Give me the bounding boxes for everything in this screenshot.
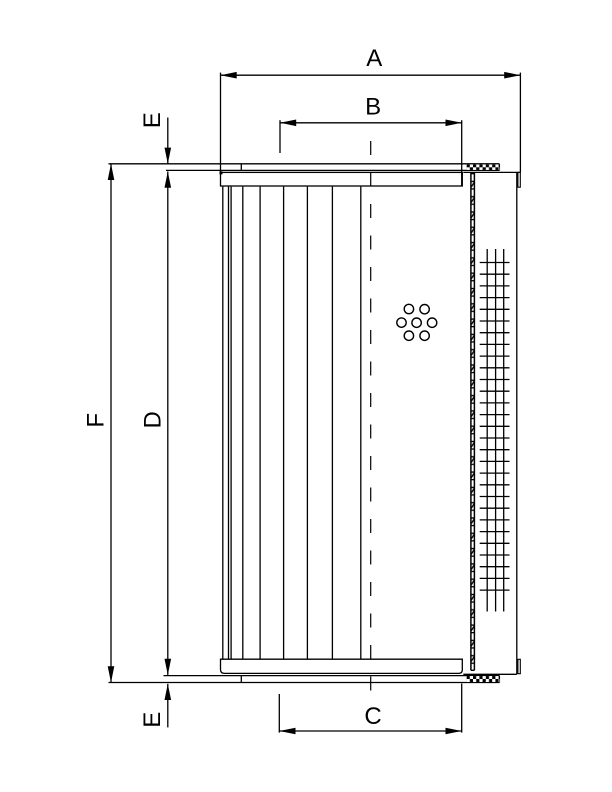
svg-text:D: D xyxy=(139,411,166,428)
svg-text:E: E xyxy=(139,112,166,128)
svg-text:A: A xyxy=(366,45,382,72)
svg-text:F: F xyxy=(82,413,109,428)
svg-text:C: C xyxy=(364,703,381,730)
svg-text:B: B xyxy=(365,93,381,120)
svg-text:E: E xyxy=(139,712,166,728)
